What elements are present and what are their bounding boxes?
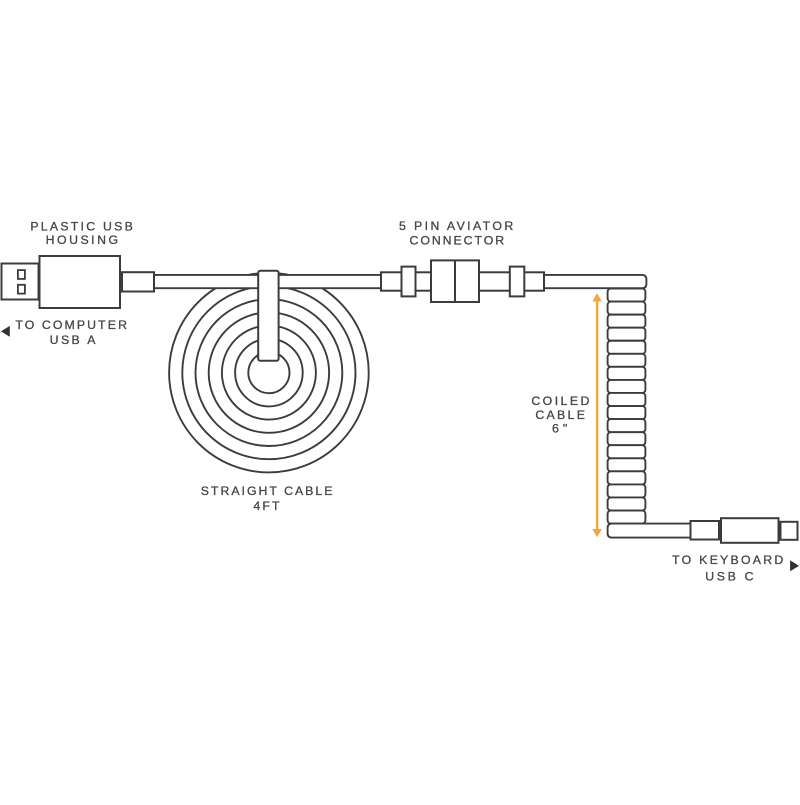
- svg-text:HOUSING: HOUSING: [46, 233, 121, 247]
- svg-text:5 PIN AVIATOR: 5 PIN AVIATOR: [399, 219, 516, 233]
- svg-text:6": 6": [552, 421, 571, 435]
- svg-text:4FT: 4FT: [253, 499, 281, 513]
- svg-text:CONNECTOR: CONNECTOR: [410, 234, 507, 248]
- svg-text:TO COMPUTER: TO COMPUTER: [15, 318, 129, 332]
- svg-text:USB A: USB A: [50, 333, 98, 347]
- svg-text:COILED: COILED: [531, 394, 591, 408]
- svg-text:TO KEYBOARD: TO KEYBOARD: [672, 553, 785, 567]
- svg-text:USB C: USB C: [705, 569, 756, 583]
- svg-text:PLASTIC USB: PLASTIC USB: [30, 219, 135, 233]
- svg-text:CABLE: CABLE: [535, 408, 587, 422]
- svg-text:STRAIGHT CABLE: STRAIGHT CABLE: [201, 484, 335, 498]
